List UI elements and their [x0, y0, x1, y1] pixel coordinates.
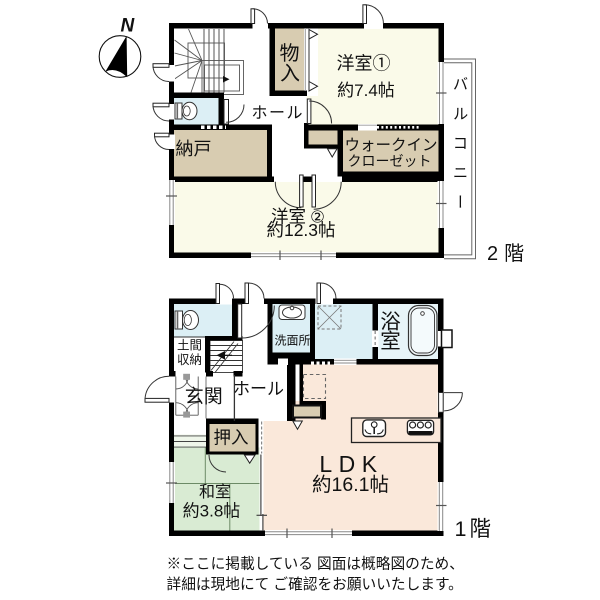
svg-text:N: N — [121, 16, 136, 37]
svg-text:ホール: ホール — [252, 105, 305, 122]
svg-text:押入: 押入 — [214, 428, 249, 448]
svg-text:バルコニー: バルコニー — [451, 76, 468, 224]
svg-text:物: 物 — [280, 42, 300, 65]
svg-text:室: 室 — [380, 330, 401, 353]
svg-text:1階: 1階 — [455, 517, 494, 541]
svg-text:約7.4帖: 約7.4帖 — [337, 81, 395, 100]
svg-text:洋室①: 洋室① — [337, 54, 391, 74]
svg-text:約12.3帖: 約12.3帖 — [266, 220, 335, 240]
svg-text:ホール: ホール — [233, 380, 284, 399]
svg-text:納戸: 納戸 — [176, 139, 212, 159]
svg-text:土間: 土間 — [177, 339, 202, 353]
svg-text:収納: 収納 — [177, 353, 202, 367]
svg-text:※ここに掲載している 図面は概略図のため、: ※ここに掲載している 図面は概略図のため、 — [167, 556, 464, 573]
svg-text:2階: 2階 — [487, 242, 530, 265]
svg-text:詳細は現地にて ご確認をお願いいたします。: 詳細は現地にて ご確認をお願いいたします。 — [167, 576, 463, 593]
svg-text:約16.1帖: 約16.1帖 — [312, 474, 389, 496]
svg-text:入: 入 — [280, 63, 300, 85]
svg-text:和室: 和室 — [199, 483, 231, 501]
svg-text:ウォークイン: ウォークイン — [344, 136, 437, 154]
svg-text:クローゼット: クローゼット — [348, 153, 432, 169]
svg-text:玄関: 玄関 — [185, 386, 223, 408]
svg-text:洗面所: 洗面所 — [274, 334, 310, 348]
svg-text:約3.8帖: 約3.8帖 — [183, 502, 241, 521]
